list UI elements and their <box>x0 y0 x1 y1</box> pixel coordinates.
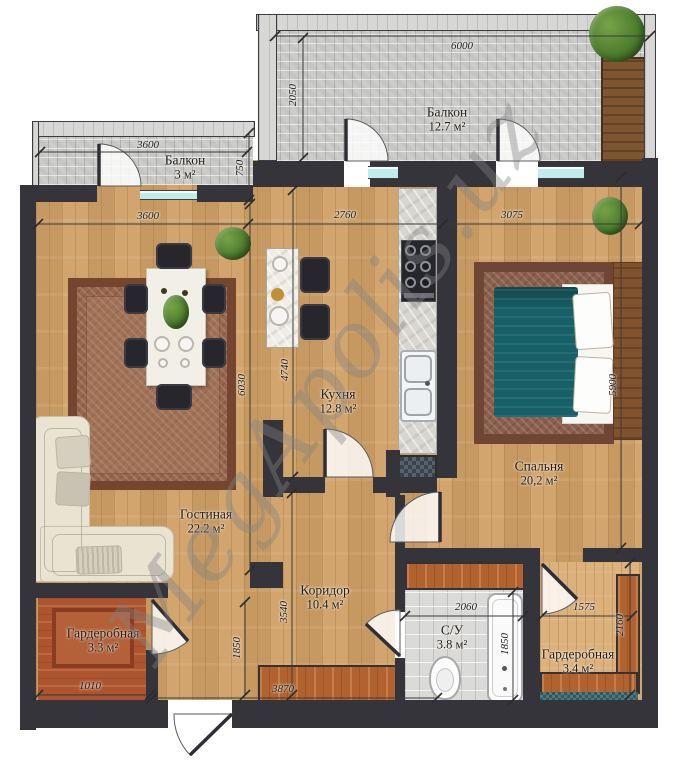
dim-kitchen-width: 2760 <box>334 209 356 221</box>
dim-living-width: 3600 <box>137 210 159 222</box>
door-arc <box>346 119 388 161</box>
dim-balcony-left-width: 3600 <box>137 139 159 151</box>
room-label-balcony-left: Балкон 3 м² <box>165 152 205 181</box>
dim-corridor-height: 3540 <box>278 601 290 623</box>
room-label-corridor: Коридор 10.4 м² <box>300 582 349 611</box>
dim-living-height: 6030 <box>236 374 248 396</box>
dim-wardrobe-left-width: 1010 <box>79 680 101 692</box>
door-arc <box>390 492 440 542</box>
dim-balcony-left-depth: 750 <box>234 160 246 177</box>
dim-balcony-top-depth: 2050 <box>287 84 299 106</box>
floor-plan: 6000 2050 3600 750 3600 2760 3075 6030 4… <box>0 0 686 768</box>
dim-bedroom-width: 3075 <box>501 209 523 221</box>
door-arc <box>325 429 373 477</box>
dim-wardrobe-right-width: 1575 <box>573 601 595 613</box>
room-label-bedroom: Спальня 20,2 м² <box>515 458 564 487</box>
room-label-living: Гостиная 22.2 м² <box>180 506 232 535</box>
dim-bathroom-width: 2060 <box>455 601 477 613</box>
door-arc <box>99 144 141 186</box>
door-arc <box>498 119 540 161</box>
room-label-bathroom: С/У 3.8 м² <box>437 622 467 651</box>
dim-kitchen-height: 4740 <box>279 359 291 381</box>
room-label-wardrobe-right: Гардеробная 3.4 м² <box>542 646 615 675</box>
dim-balcony-top-width: 6000 <box>451 40 473 52</box>
room-label-kitchen: Кухня 12.8 м² <box>320 386 357 415</box>
room-label-wardrobe-left: Гардеробная 3.3 м² <box>67 625 140 654</box>
dim-wardrobe-right-height: 2160 <box>614 614 626 636</box>
room-label-balcony-top: Балкон 12.7 м² <box>427 104 467 133</box>
dim-hall-height: 1850 <box>231 637 243 659</box>
dim-bathroom-height: 1850 <box>499 633 511 655</box>
dim-corridor-width: 3870 <box>272 683 294 695</box>
dim-bedroom-height: 5900 <box>607 374 619 396</box>
